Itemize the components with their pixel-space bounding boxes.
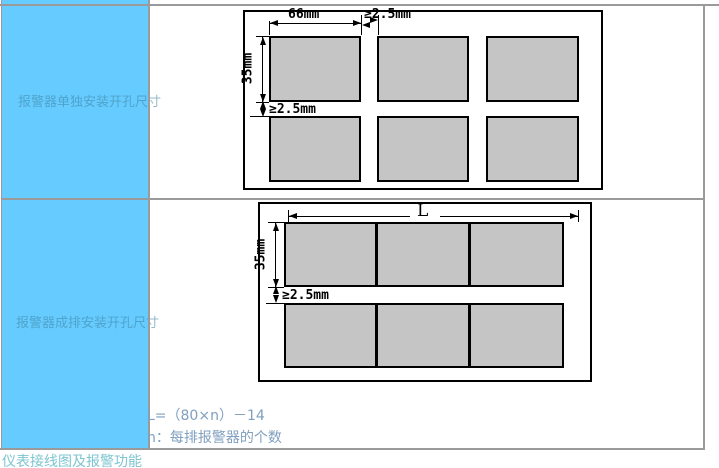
table-column-divider [148, 0, 150, 448]
gap-arrow [362, 22, 370, 28]
dimension-tick [266, 303, 284, 304]
h-gap-dimension-label: ≥2.5mm [364, 8, 411, 21]
dim-arrow-up [260, 37, 266, 45]
table-border-bottom [0, 448, 705, 450]
height-dimension-label: 35mm [242, 49, 255, 89]
dimension-line [440, 216, 578, 217]
cutout-rect [377, 36, 469, 102]
cutout-rect [377, 116, 469, 182]
dim-arrow-up [273, 223, 279, 231]
height-dimension-label: 35mm [255, 235, 268, 275]
gap-arrow [273, 295, 279, 303]
v-gap-dimension-label: ≥2.5mm [282, 289, 329, 302]
dim-arrow-right [570, 213, 578, 219]
row2-header-cell: 报警器成排安装开孔尺寸 [2, 200, 148, 448]
row1-label: 报警器单独安装开孔尺寸 [18, 91, 161, 110]
dim-arrow-left [270, 20, 278, 26]
cutout-rect [269, 36, 361, 102]
dimension-extension-line [578, 210, 579, 222]
dim-arrow-left [289, 213, 297, 219]
table-border-left [1, 0, 2, 450]
cutout-strip [284, 303, 564, 368]
strip-divider [375, 222, 378, 287]
document-page: 报警器单独安装开孔尺寸 报警器成排安装开孔尺寸 66mm ≥2.5mm 35mm… [0, 0, 719, 468]
length-dimension-label: L [417, 203, 428, 220]
dimension-line [288, 216, 410, 217]
dim-arrow-right [353, 20, 361, 26]
strip-divider [468, 303, 471, 368]
v-gap-dimension-label: ≥2.5mm [269, 103, 316, 116]
width-dimension-label: 66mm [288, 8, 319, 21]
row2-label: 报警器成排安装开孔尺寸 [16, 312, 159, 331]
length-formula: L=（80×n）－14 [147, 405, 265, 427]
gap-arrow [273, 286, 279, 294]
table-border-right [703, 4, 705, 450]
dimension-line [275, 222, 276, 287]
section-link-wiring-alarm[interactable]: 仪表接线图及报警功能 [2, 451, 142, 468]
dimension-line [262, 36, 263, 102]
table-row-divider [2, 198, 704, 200]
cutout-rect [486, 36, 579, 102]
dimension-tick [250, 116, 269, 117]
gap-arrow [260, 101, 266, 109]
n-definition: n：每排报警器的个数 [147, 427, 282, 449]
cutout-strip [284, 222, 564, 287]
cutout-rect [269, 116, 361, 182]
table-border-top [0, 4, 719, 6]
dimension-line [269, 23, 361, 24]
row1-header-cell: 报警器单独安装开孔尺寸 [2, 6, 148, 198]
strip-divider [375, 303, 378, 368]
strip-divider [468, 222, 471, 287]
cutout-rect [486, 116, 579, 182]
